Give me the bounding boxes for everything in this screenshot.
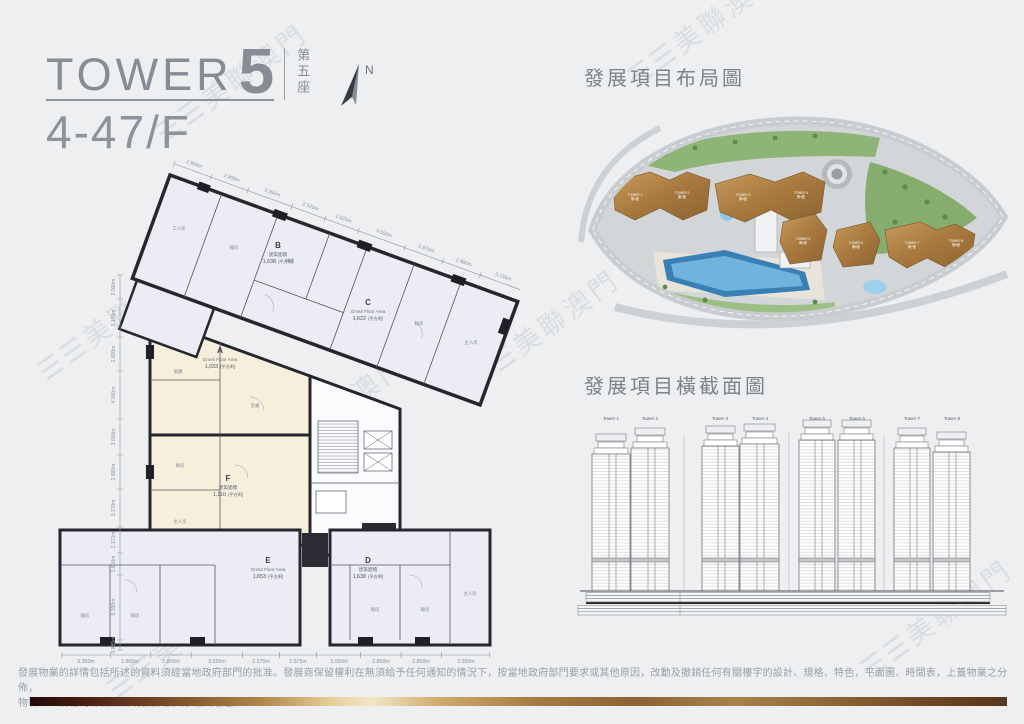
dim-label: 0.885m — [111, 637, 117, 654]
dim-label: 5.350m — [111, 599, 117, 616]
dim-label: 2.800m — [372, 659, 390, 665]
section-tower-4 — [740, 424, 779, 591]
svg-text:建築面積: 建築面積 — [359, 566, 378, 573]
dim-label: 2.800m — [121, 659, 139, 665]
dim-label: 3.170m — [111, 500, 117, 517]
svg-text:1,033(平方呎): 1,033(平方呎) — [205, 363, 236, 370]
svg-text:睡房: 睡房 — [81, 612, 90, 619]
cross-section-title: 發展項目橫截面圖 — [584, 370, 768, 399]
svg-text:睡房: 睡房 — [421, 606, 430, 613]
svg-text:1,110(平方呎): 1,110(平方呎) — [213, 491, 244, 498]
svg-text:睡房: 睡房 — [176, 462, 185, 469]
dim-label: 2.575m — [252, 659, 270, 665]
dim-label: 3.000m — [111, 429, 117, 446]
dim-label: 3.150m — [111, 310, 117, 327]
svg-text:Tower 4: Tower 4 — [752, 416, 769, 421]
section-tower-7 — [894, 428, 930, 591]
site-plan: TOWER 1第1座 TOWER 2第2座 TOWER 3第3座 TOWER 4… — [575, 102, 1015, 352]
tower-title-chinese: 第五座 — [293, 48, 312, 96]
svg-text:A: A — [217, 346, 223, 355]
section-tower-8 — [933, 432, 970, 591]
dim-label: 2.575m — [289, 659, 307, 665]
dim-label: 3.050m — [330, 659, 348, 665]
meter-room-block — [302, 533, 328, 567]
svg-text:Gross Floor Area: Gross Floor Area — [351, 309, 386, 314]
dim-label: 2.800m — [162, 659, 180, 665]
dim-label: 3.350m — [77, 659, 95, 665]
dimension-chain-bottom: 3.350m 2.800m 2.800m 3.550m 2.575m 2.575… — [62, 652, 490, 665]
unit-d-region — [330, 530, 490, 645]
site-plan-title: 發展項目布局圖 — [584, 62, 745, 91]
svg-text:睡房: 睡房 — [131, 612, 140, 619]
footer-gradient-bar — [30, 697, 1007, 706]
disclaimer-line-1: 發展物業的詳情包括所述的資料須經當地政府部門的批准。發展商保留權利在無須給予任何… — [18, 666, 1010, 696]
svg-text:1,622(平方呎): 1,622(平方呎) — [353, 315, 384, 322]
svg-text:C: C — [365, 298, 371, 307]
svg-text:1,653(平方呎): 1,653(平方呎) — [253, 573, 284, 580]
north-label: N — [365, 63, 374, 77]
svg-text:主人房: 主人房 — [463, 590, 477, 597]
dim-label: 2.800m — [111, 464, 117, 481]
podium — [578, 591, 1006, 615]
title-divider — [284, 48, 285, 100]
svg-text:工人房: 工人房 — [172, 225, 186, 232]
svg-text:Gross Floor Area: Gross Floor Area — [203, 357, 238, 362]
svg-text:第5座: 第5座 — [799, 240, 808, 245]
svg-text:第3座: 第3座 — [739, 196, 748, 201]
svg-text:第1座: 第1座 — [631, 196, 640, 201]
svg-text:Tower 8: Tower 8 — [944, 416, 961, 421]
svg-text:第7座: 第7座 — [908, 244, 917, 249]
svg-text:D: D — [365, 556, 371, 565]
svg-text:Tower 7: Tower 7 — [904, 416, 921, 421]
svg-text:1,638(平方呎): 1,638(平方呎) — [353, 573, 384, 580]
svg-text:B: B — [275, 241, 281, 250]
svg-text:睡房: 睡房 — [230, 244, 239, 251]
dim-label: 3.550m — [208, 659, 226, 665]
svg-text:Tower 2: Tower 2 — [642, 416, 659, 421]
svg-text:建築面積: 建築面積 — [269, 251, 288, 258]
section-tower-labels: Tower 1 Tower 2 Tower 3 Tower 4 Tower 5 … — [603, 416, 961, 421]
section-tower-6 — [838, 420, 875, 591]
svg-text:第6座: 第6座 — [852, 244, 861, 249]
section-tower-3 — [702, 426, 739, 591]
tower-title: TOWER — [46, 52, 233, 97]
section-tower-1 — [592, 434, 630, 591]
dim-label: 2.172m — [111, 532, 117, 549]
section-tower-5 — [799, 420, 835, 591]
svg-text:1,638(平方呎): 1,638(平方呎) — [263, 258, 294, 265]
cross-section: Tower 1 Tower 2 Tower 3 Tower 4 Tower 5 … — [572, 406, 1012, 651]
svg-text:主人房: 主人房 — [173, 518, 187, 525]
svg-text:Tower 3: Tower 3 — [712, 416, 729, 421]
dim-label: 4.000m — [111, 387, 117, 404]
svg-text:E: E — [265, 556, 271, 565]
dim-label: 2.800m — [412, 659, 430, 665]
svg-text:建築面積: 建築面積 — [219, 484, 238, 491]
core-region — [310, 376, 400, 555]
floor-plan: 2.800m 2.800m 3.350m 2.520m 2.525m 3.550… — [50, 135, 520, 665]
svg-text:Gross Floor Area: Gross Floor Area — [251, 567, 286, 572]
dim-label: 3.350m — [457, 659, 475, 665]
unit-e-region — [60, 530, 300, 645]
north-arrow: N — [336, 60, 380, 112]
svg-text:第2座: 第2座 — [678, 194, 687, 199]
dim-label: 2.000m — [111, 279, 117, 296]
dim-label: 2.805m — [111, 346, 117, 363]
svg-text:第8座: 第8座 — [952, 242, 961, 247]
svg-text:主人房: 主人房 — [464, 339, 478, 346]
section-towers — [592, 420, 970, 591]
svg-text:Tower 1: Tower 1 — [603, 416, 620, 421]
svg-text:客廳: 客廳 — [251, 402, 260, 409]
svg-text:F: F — [226, 474, 231, 483]
svg-text:睡房: 睡房 — [371, 606, 380, 613]
svg-text:睡房: 睡房 — [415, 320, 424, 327]
section-tower-2 — [631, 428, 669, 591]
svg-text:第4座: 第4座 — [797, 194, 806, 199]
dim-label: 1.800m — [111, 556, 117, 573]
tower-number: 5 — [239, 46, 275, 97]
svg-text:飯廳: 飯廳 — [174, 368, 183, 375]
